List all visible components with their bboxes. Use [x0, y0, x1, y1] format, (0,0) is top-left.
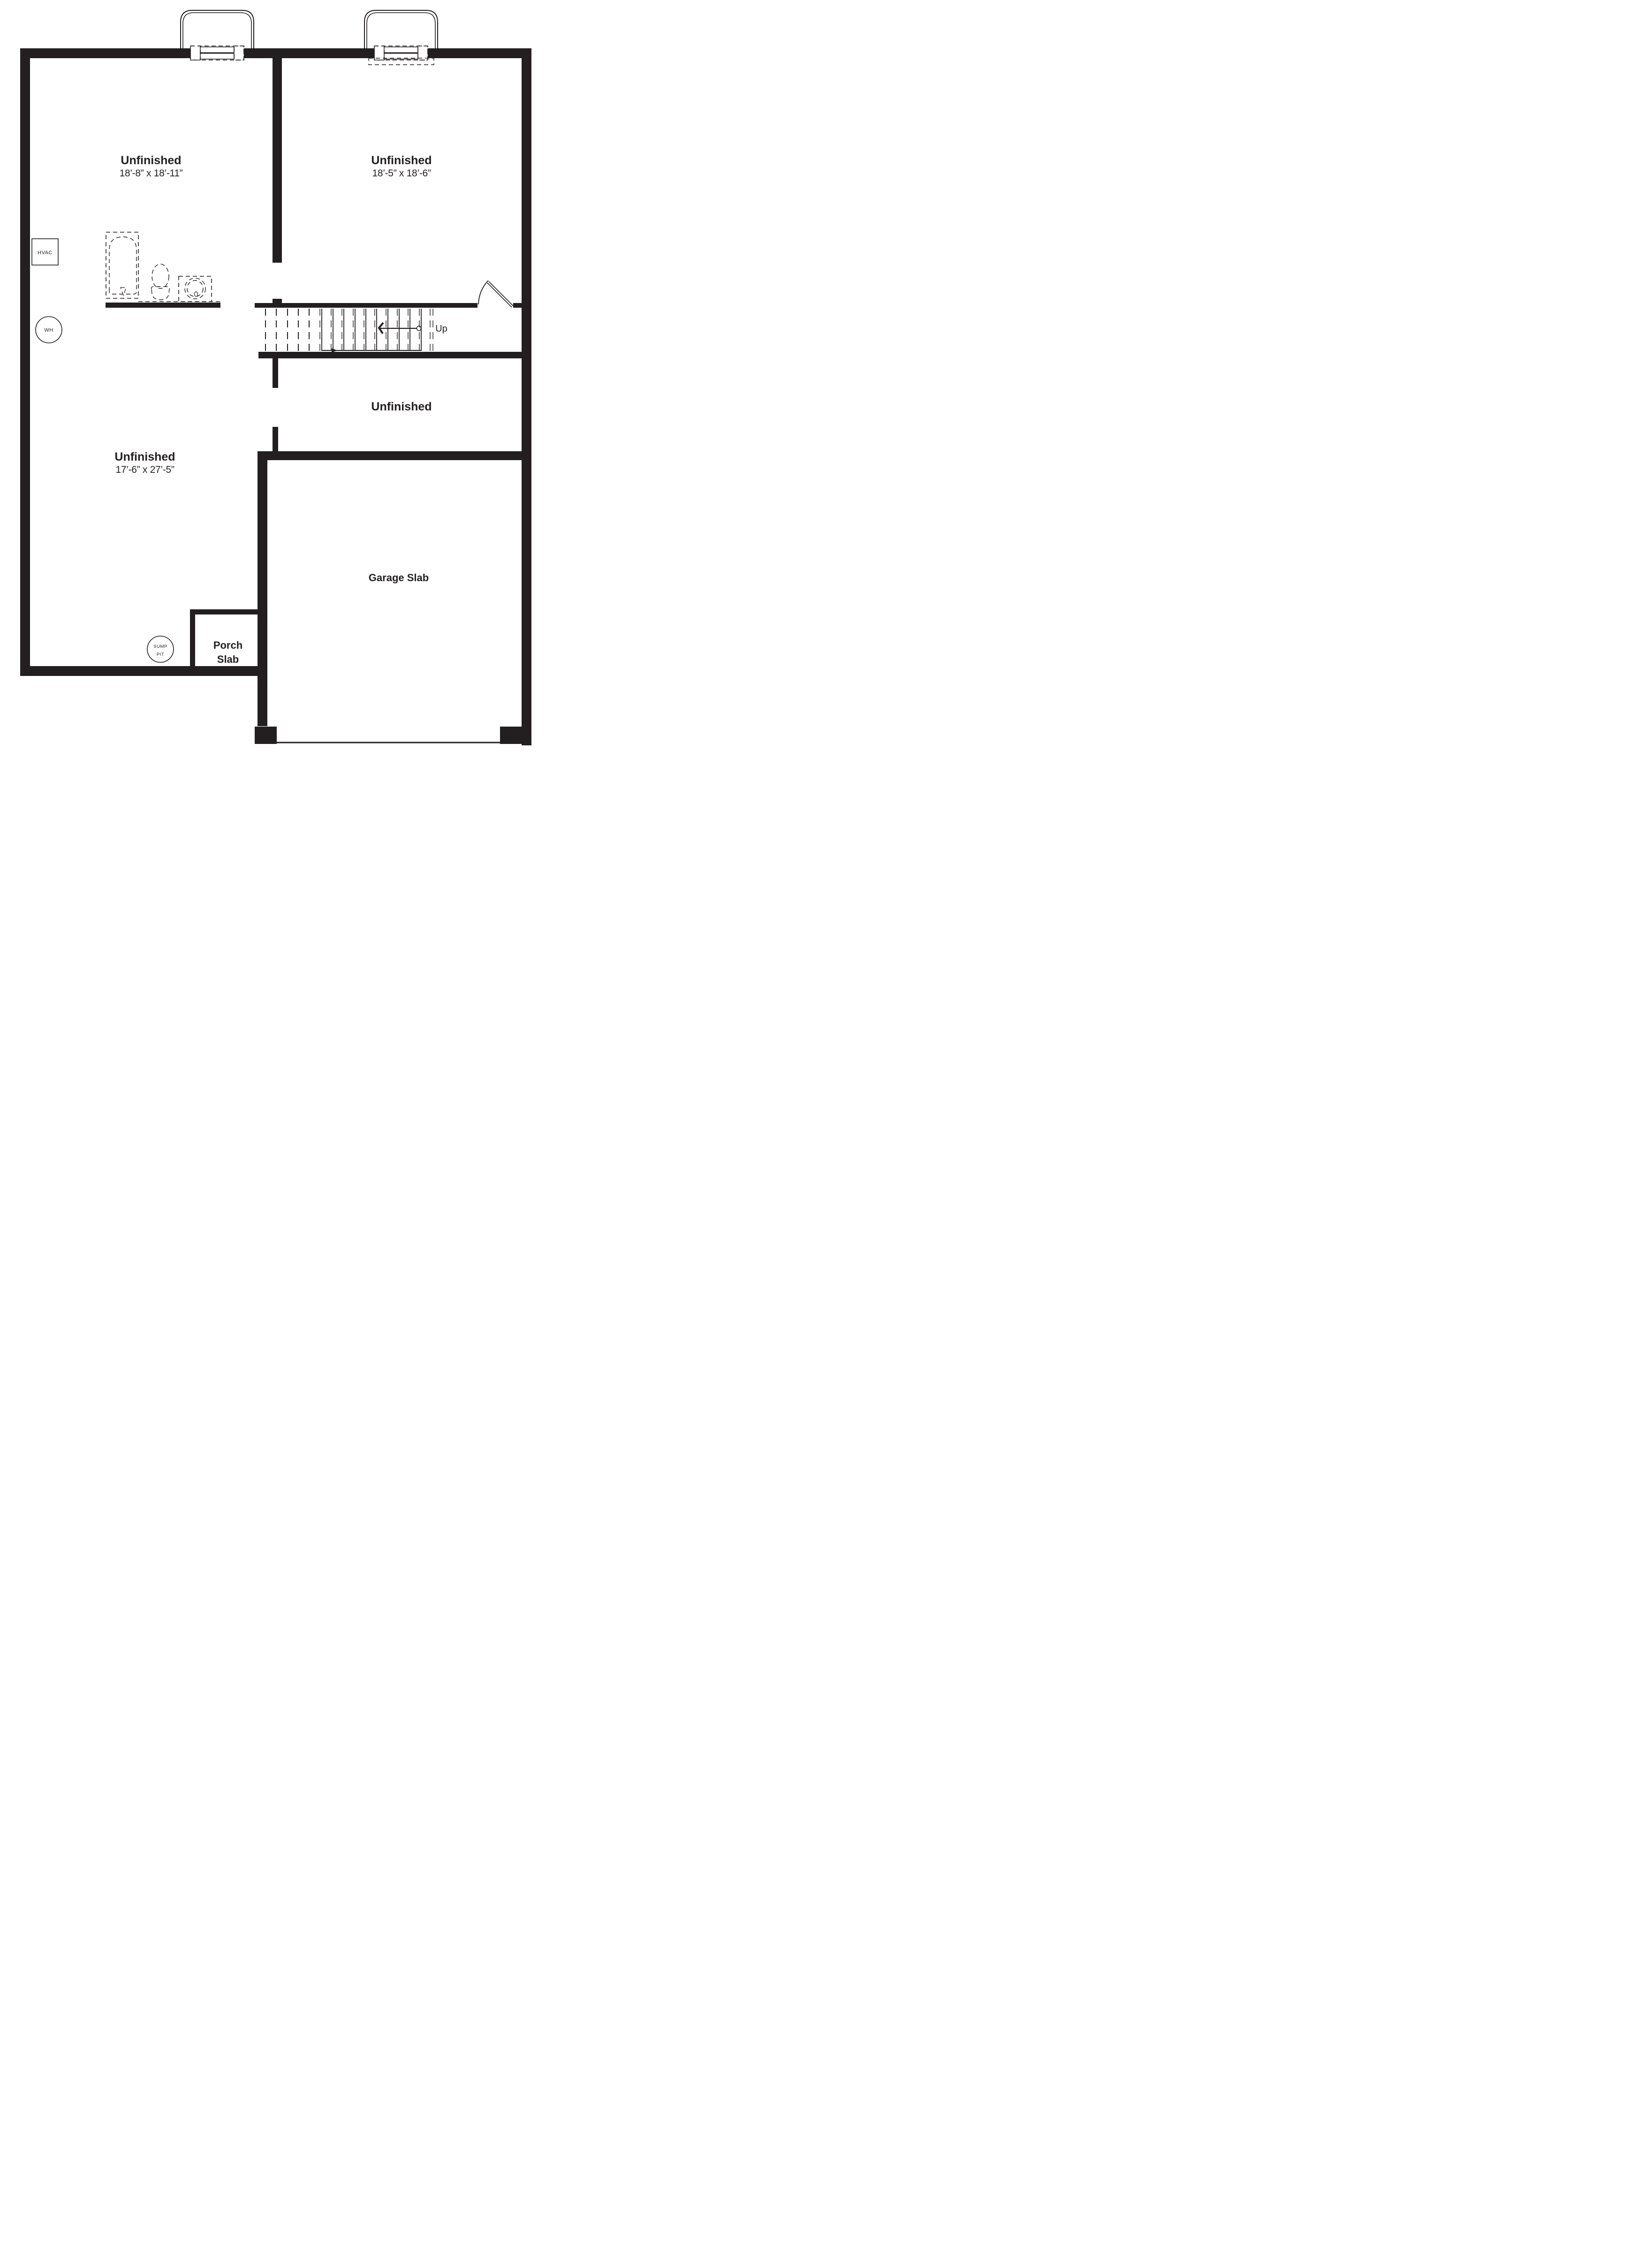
stairs — [265, 309, 433, 353]
hvac-label: HVAC — [38, 250, 53, 256]
room-middle-name: Unfinished — [371, 400, 432, 413]
walls — [20, 48, 531, 745]
water-heater-label: WH — [44, 327, 53, 333]
left-wall — [20, 48, 30, 676]
room-top-right-name: Unfinished — [371, 154, 432, 167]
stairs-up-label: Up — [435, 324, 447, 334]
under-stair-wall-lower — [273, 427, 278, 451]
garage-door-pier-right — [500, 727, 522, 744]
sink-drain-icon — [195, 292, 198, 296]
porch-left-wall — [190, 609, 195, 666]
sink-bowl-inner-icon — [187, 281, 203, 296]
window-well-inner-icon — [367, 13, 435, 48]
garage-left-wall — [258, 460, 267, 726]
bath-rough-in — [106, 232, 220, 302]
room-lower-left-dims: 17’-6” x 27’-5” — [115, 464, 174, 475]
top-wall-middle-segment — [244, 48, 374, 58]
tub-outline — [106, 232, 138, 298]
floor-plan-drawing: HVAC WH SUMP PIT Unfinished 18’-8” x 18’… — [0, 0, 551, 753]
top-wall-left-segment — [20, 48, 190, 58]
stair-treads — [320, 309, 421, 351]
room-top-left-dims: 18’-8” x 18’-11” — [120, 168, 183, 179]
stair-door-jamb-stub — [513, 303, 522, 308]
divider-wall-upper — [273, 58, 282, 263]
garage-top-wall — [258, 451, 522, 460]
under-stair-wall-upper — [273, 358, 278, 388]
garage-slab-label: Garage Slab — [369, 572, 429, 584]
up-arrow-tail-circle-icon — [417, 326, 421, 331]
window-well-outer-icon — [181, 10, 254, 48]
stair-top-wall — [255, 303, 477, 308]
right-wall — [522, 48, 531, 745]
sump-pit — [147, 636, 174, 662]
window-well-inner-icon — [183, 13, 251, 48]
porch-top-wall — [190, 609, 258, 614]
window-jamb-right — [234, 46, 244, 60]
garage-door-pier-left — [255, 727, 277, 744]
room-top-left-name: Unfinished — [121, 154, 181, 167]
bath-plumbing-wall — [106, 303, 220, 308]
stair-door — [478, 281, 513, 307]
floor-plan-page: HVAC WH SUMP PIT Unfinished 18’-8” x 18’… — [0, 0, 551, 753]
stair-bottom-wall — [258, 352, 522, 358]
vanity-outline — [179, 276, 212, 302]
room-lower-left-name: Unfinished — [114, 450, 175, 463]
room-top-right-dims: 18’-5” x 18’-6” — [372, 168, 431, 179]
sink-bowl-outer-icon — [185, 278, 205, 299]
sump-pit-label-line1: SUMP — [153, 644, 167, 649]
tub-basin-icon — [109, 237, 136, 294]
window-left — [181, 10, 254, 60]
door-swing-arc-icon — [478, 281, 488, 304]
door-leaf-line2 — [489, 281, 513, 306]
bottom-left-wall — [20, 666, 267, 676]
window-well-outer-icon — [364, 10, 438, 48]
window-right — [364, 10, 438, 65]
door-leaf-line1 — [487, 283, 512, 307]
sump-pit-label-line2: PIT — [157, 652, 164, 657]
porch-slab-label-line1: Porch — [213, 639, 242, 651]
top-wall-right-segment — [428, 48, 531, 58]
window-jamb-left — [190, 46, 200, 60]
porch-slab-label-line2: Slab — [217, 653, 239, 665]
toilet-bowl-icon — [152, 264, 169, 288]
